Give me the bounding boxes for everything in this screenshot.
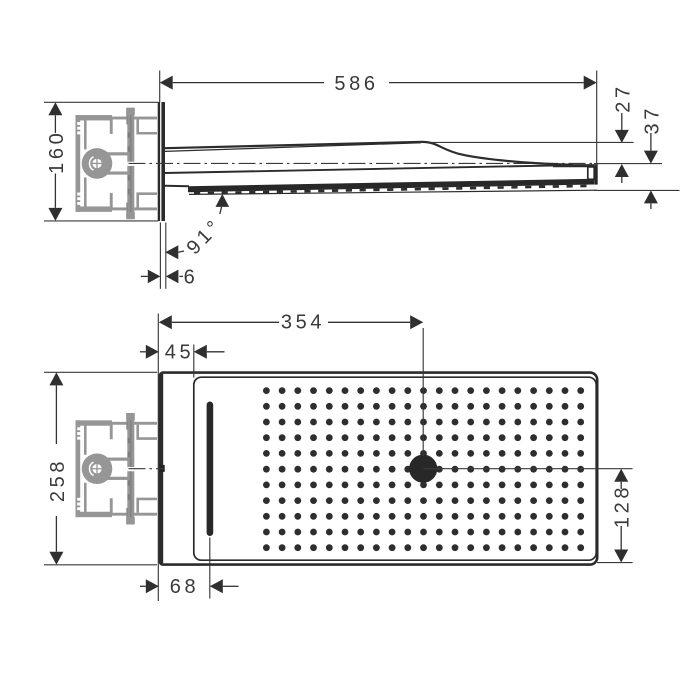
svg-text:354: 354 [281,311,325,333]
svg-text:6: 6 [184,267,199,289]
svg-text:160: 160 [46,130,68,174]
svg-text:128: 128 [612,484,634,528]
svg-text:27: 27 [612,83,634,112]
svg-text:586: 586 [334,73,378,95]
svg-text:68: 68 [170,576,199,598]
svg-text:37: 37 [641,105,663,134]
svg-text:258: 258 [47,458,69,502]
svg-text:45: 45 [165,342,194,364]
